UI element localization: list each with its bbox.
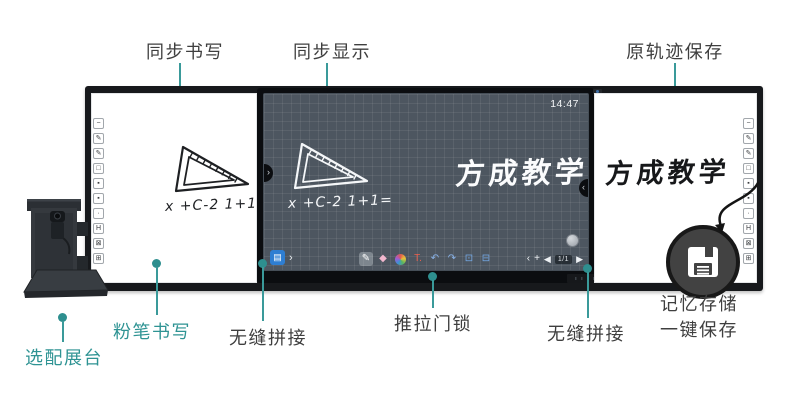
palette-tool-icon[interactable] xyxy=(395,254,406,265)
product-diagram: 同步书写 同步显示 原轨迹保存 −✎✎□▪▪·H⊠⊞ x + xyxy=(0,0,800,415)
callout-sync-writing: 同步书写 xyxy=(146,38,224,64)
chalk-triangle-drawing xyxy=(173,139,251,201)
screen-handwriting: x +C-2 1+1= xyxy=(288,192,393,212)
screen-triangle-drawing xyxy=(292,136,370,198)
left-slide-tab[interactable]: › xyxy=(264,164,273,182)
minus-icon[interactable]: − xyxy=(93,118,104,129)
pen-tool-icon[interactable]: ✎ xyxy=(359,252,373,266)
document-camera-stand xyxy=(14,196,114,304)
touchscreen[interactable]: 14:47 x +C-2 1+1= 方成教学 › ‹ xyxy=(263,93,589,271)
select-tool-icon[interactable]: ⊡ xyxy=(462,252,476,266)
left-whiteboard-panel[interactable]: −✎✎□▪▪·H⊠⊞ x +C-2 1+1= xyxy=(91,93,257,283)
callout-line xyxy=(62,321,64,342)
dot-bold-icon[interactable]: ▪ xyxy=(743,178,754,189)
clock: 14:47 xyxy=(550,98,579,110)
minus-icon[interactable]: − xyxy=(743,118,754,129)
dot-bold-icon[interactable]: ▪ xyxy=(93,178,104,189)
board-icon[interactable]: □ xyxy=(743,163,754,174)
pen-icon[interactable]: ✎ xyxy=(743,133,754,144)
callout-stand: 选配展台 xyxy=(25,344,103,370)
menu-button[interactable]: ▤ xyxy=(270,250,285,265)
expand-chevron-icon[interactable]: › xyxy=(289,252,293,264)
text-tool-icon[interactable]: T. xyxy=(411,252,425,266)
pencil-icon[interactable]: ✎ xyxy=(743,148,754,159)
screen-calligraphy: 方成教学 xyxy=(454,149,589,193)
toolbar-tools-group: ✎◆T.↶↷⊡⊟ xyxy=(359,252,493,266)
right-slide-tab[interactable]: ‹ xyxy=(579,179,588,197)
floppy-disk-icon xyxy=(686,245,720,279)
right-tool-strip: −✎✎□▪▪·H⊠⊞ xyxy=(743,118,755,264)
redo-icon[interactable]: ↷ xyxy=(445,252,459,266)
callout-line xyxy=(156,267,158,315)
saved-calligraphy: 方成教学 xyxy=(604,150,732,191)
floating-assistant-ball[interactable] xyxy=(566,234,579,247)
callout-chalk-writing: 粉笔书写 xyxy=(113,318,191,344)
dot-icon[interactable]: ▪ xyxy=(743,193,754,204)
next-page-button[interactable]: ▶ xyxy=(576,252,583,266)
prev-page-button[interactable]: ◀ xyxy=(544,252,551,266)
memory-save-line2: 一键保存 xyxy=(660,317,738,343)
callout-memory-save: 记忆存储 一键保存 xyxy=(660,291,738,343)
toolbar-left-group: ▤ › xyxy=(270,250,293,265)
handle-icon[interactable]: H xyxy=(743,223,754,234)
callout-seam-left: 无缝拼接 xyxy=(229,324,307,350)
grid-icon[interactable]: ⊞ xyxy=(743,253,754,264)
callout-trace-save: 原轨迹保存 xyxy=(626,38,724,64)
collapse-icon[interactable]: ‹ xyxy=(527,252,530,266)
pencil-icon[interactable]: ✎ xyxy=(93,148,104,159)
undo-icon[interactable]: ↶ xyxy=(428,252,442,266)
dot-small-icon[interactable]: · xyxy=(743,208,754,219)
callout-line xyxy=(432,280,434,308)
callout-line xyxy=(262,267,264,321)
trash-icon[interactable]: ⊟ xyxy=(479,252,493,266)
memory-save-line1: 记忆存储 xyxy=(660,291,738,317)
eraser-tool-icon[interactable]: ◆ xyxy=(376,252,390,266)
toolbar-pager-group: ‹ + ◀ 1/1 ▶ xyxy=(527,252,583,266)
board-icon[interactable]: □ xyxy=(93,163,104,174)
screen-bezel: 14:47 x +C-2 1+1= 方成教学 › ‹ xyxy=(257,88,594,283)
page-indicator: 1/1 xyxy=(555,255,572,264)
callout-seam-right: 无缝拼接 xyxy=(547,320,625,346)
callout-sync-display: 同步显示 xyxy=(293,38,371,64)
pen-icon[interactable]: ✎ xyxy=(93,133,104,144)
save-button[interactable] xyxy=(666,225,740,299)
add-page-button[interactable]: + xyxy=(534,252,540,266)
callout-sliding-lock: 推拉门锁 xyxy=(394,310,472,336)
chalk-handwriting: x +C-2 1+1= xyxy=(165,195,270,215)
smart-blackboard: −✎✎□▪▪·H⊠⊞ x +C-2 1+1= 14:47 xyxy=(85,86,763,291)
callout-line xyxy=(587,272,589,318)
close-grid-icon[interactable]: ⊠ xyxy=(743,238,754,249)
